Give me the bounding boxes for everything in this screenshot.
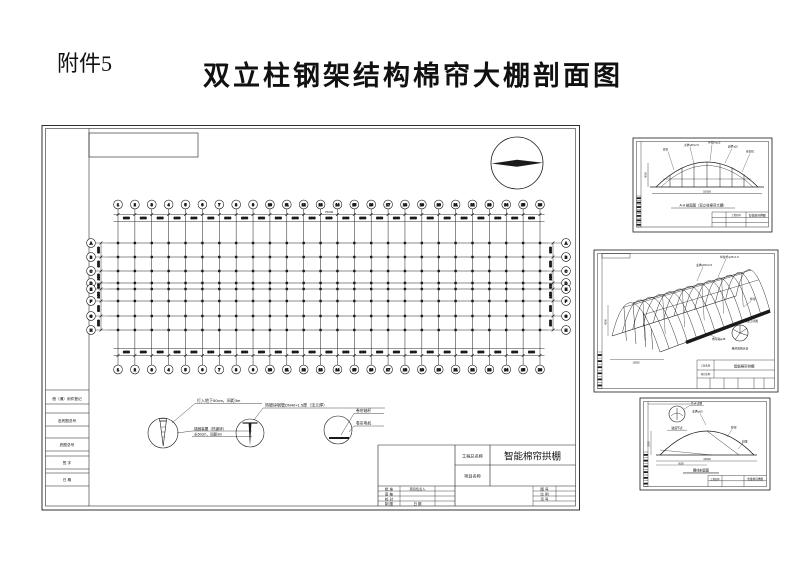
sec-note: 棉帘: [663, 148, 669, 152]
grid-bubble-number: 18: [403, 368, 407, 372]
wheel-caption: 卷帘机构示意: [732, 347, 749, 351]
strip-label: 底图总号: [60, 442, 75, 447]
bay-dim: 3000: [461, 216, 468, 220]
panel2-titleblock: 工程名称 智能棉帘拱棚 项目名称: [697, 360, 775, 389]
grid-bubble-number: 20: [437, 368, 441, 372]
row-dim: 3000: [548, 260, 552, 267]
grid-bubble-number: 19: [420, 368, 424, 372]
anchor-note: 打入地下50cm，间距3m: [197, 397, 241, 403]
bay-dim: 3000: [174, 216, 181, 220]
sheet-no-label: 图 号: [540, 486, 549, 491]
king-post: [682, 289, 685, 327]
bay-dim: 3000: [191, 216, 198, 220]
micro-text-bar: [644, 454, 647, 455]
row-dim: 3000: [548, 319, 552, 326]
king-post: [643, 300, 646, 340]
grid-bubble-number: 16: [369, 368, 373, 372]
panel2-strip: [598, 352, 603, 389]
height-dim: 4500: [644, 172, 648, 178]
grid-bubble-number: 12: [302, 368, 306, 372]
grid-bubble-number: 21: [454, 368, 458, 372]
micro-text-bar: [644, 483, 647, 484]
grid-bubble-number: 11: [285, 368, 289, 372]
grid-bubble-number: 23: [487, 203, 491, 207]
bay-dim: 3000: [225, 350, 232, 354]
grid-bubble-number: 1: [117, 203, 119, 207]
grid-bubble-number: 4: [168, 368, 170, 372]
sign-row-label: 审 核: [385, 491, 394, 496]
span-dim: 10000: [632, 361, 640, 365]
block-value: 智能棉帘拱棚: [749, 213, 766, 217]
tunnel-arc: [633, 297, 679, 345]
block-label: 项目名称: [701, 372, 711, 376]
page-title: 双立柱钢架结构棉帘大棚剖面图: [203, 60, 623, 91]
bay-dim: 3000: [140, 216, 147, 220]
micro-text-bar: [637, 207, 640, 208]
grid-bubble-number: 24: [504, 368, 508, 372]
panel1-titleblock: 工程名称 智能棉帘拱棚: [712, 212, 769, 227]
roller-note: 卷帘电机: [356, 421, 371, 426]
grid-bubble-number: 6: [201, 368, 203, 372]
grid-bubble-number: 10: [268, 368, 272, 372]
revision-box: [89, 133, 198, 157]
strip-label: 借（通）用件登记: [52, 396, 82, 401]
tunnel-arc: [695, 281, 734, 325]
block-label: 工程名称: [731, 213, 741, 217]
span-dim: 10000: [703, 190, 711, 194]
grid-bubble-letter: F: [90, 299, 92, 303]
bay-dim: 3000: [528, 350, 535, 354]
bay-dim: 3000: [123, 350, 130, 354]
grid-bubble-number: 9: [252, 368, 254, 372]
bay-dim: 3000: [528, 216, 535, 220]
node-caption: 锚固节点: [671, 426, 682, 430]
bay-dim: 3000: [444, 216, 451, 220]
grid-bubble-number: 7: [218, 368, 220, 372]
grid-bubble-number: 7: [218, 203, 220, 207]
grid-bubble-number: 14: [335, 203, 339, 207]
grid-bubble-number: 19: [420, 203, 424, 207]
pipe-note: 热镀锌钢管DN40×1.5厚（法兰焊）: [265, 402, 327, 408]
bay-dim: 3000: [495, 350, 502, 354]
grid-bubble-number: 26: [538, 368, 542, 372]
total-dim-label: 75000: [325, 210, 334, 214]
bay-dim: 3000: [376, 216, 383, 220]
bay-dim: 3000: [258, 216, 265, 220]
bay-dim: 3000: [309, 216, 316, 220]
grid-bubble-number: 8: [235, 368, 237, 372]
block-value: 智能棉帘拱棚: [747, 477, 763, 481]
arch-note: 斜撑: [742, 440, 748, 444]
drawing-page: 附件5 双立柱钢架结构棉帘大棚剖面图 75000 112233445566778…: [0, 0, 800, 565]
north-arrow: [491, 137, 543, 189]
cad-scene: 附件5 双立柱钢架结构棉帘大棚剖面图 75000 112233445566778…: [0, 0, 800, 565]
anchor-note: 锚固装置（热镀锌）: [194, 426, 226, 431]
end-post: [624, 306, 627, 340]
micro-text-bar: [644, 466, 647, 467]
bay-dim: 3000: [376, 350, 383, 354]
micro-text-bar: [637, 216, 640, 217]
grid-bubble-number: 17: [386, 368, 390, 372]
project-label: 工程总名称: [462, 453, 483, 460]
micro-text-bar: [637, 220, 640, 221]
grid-bubble-number: 3: [151, 368, 153, 372]
micro-text-bar: [637, 211, 640, 212]
height-dim: 3200: [648, 441, 651, 447]
block-label: 工程名称: [701, 363, 711, 367]
date-label: 日 期: [414, 501, 422, 506]
span-dim: 10000: [703, 457, 711, 461]
node-label: 节点详图: [691, 402, 702, 406]
row-dim: 2400: [548, 273, 552, 280]
bay-dim: 3000: [410, 216, 417, 220]
micro-text-bar: [598, 367, 601, 368]
row-dim: 3000: [548, 305, 552, 312]
side-strip: 借（通）用件登记 旧底图总号 底图总号 签 字 日 期: [46, 390, 90, 486]
half-dim: 5000: [678, 462, 684, 465]
attachment-label: 附件5: [57, 51, 112, 76]
item-label: 项目名称: [464, 473, 481, 480]
grid-bubble-number: 22: [471, 203, 475, 207]
panel3-title: 棚体剖面图: [693, 468, 709, 473]
bay-dim: 3000: [191, 350, 198, 354]
grid-bubble-number: 13: [319, 203, 323, 207]
anchor-note: 长50cm，间距3m: [194, 431, 222, 436]
micro-text-bar: [644, 460, 647, 461]
bay-dim: 3000: [326, 216, 333, 220]
grid-bubble-letter: F: [565, 299, 567, 303]
micro-text-bar: [598, 355, 601, 356]
tunnel-arc: [664, 289, 706, 335]
grid-bubble-number: 2: [134, 203, 136, 207]
roller-wheel: [732, 325, 748, 341]
grid-bubble-number: 20: [437, 203, 441, 207]
bay-dim: 3000: [174, 350, 181, 354]
micro-text-bar: [637, 202, 640, 203]
panel-section-sheet: 棉帘 主拱φ60×2.5 纵拉杆φ25 副拱φ25 卷帘机 10000 4500…: [633, 138, 772, 232]
bay-dim: 3000: [360, 216, 367, 220]
grid-bubble-number: 23: [487, 368, 491, 372]
column-grid: 1122334455667788991010111112121313141415…: [87, 200, 571, 374]
bay-dim: 3000: [444, 350, 451, 354]
rolled-curtain-band: [686, 311, 770, 343]
bay-dim: 3000: [410, 350, 417, 354]
panel2-dims: [608, 305, 664, 360]
bay-dim: 3000: [241, 216, 248, 220]
bay-dim: 3000: [511, 216, 518, 220]
sheet-outer-border: [42, 126, 580, 511]
bay-dim: 3000: [326, 350, 333, 354]
sign-row-label: 制 图: [385, 501, 394, 506]
roller-note: 卷帘轴杆: [356, 408, 371, 413]
micro-text-bar: [598, 361, 601, 362]
sec-note: 纵拉杆φ25: [708, 141, 721, 145]
row-dim: 900: [548, 283, 552, 288]
micro-text-bar: [598, 379, 601, 380]
end-post: [633, 303, 636, 344]
grid-bubble-number: 17: [386, 203, 390, 207]
bay-dim: 3000: [241, 350, 248, 354]
height-dim: 4500: [603, 319, 607, 325]
grid-bubble-letter: G: [565, 314, 568, 318]
tunnel-arc: [674, 286, 715, 331]
grid-bubble-number: 25: [521, 203, 525, 207]
project-name: 智能棉帘拱棚: [504, 451, 561, 463]
title-block: 工程总名称 智能棉帘拱棚 项目名称 批 准 审 核 校 对 制 图 项目负责人 …: [378, 445, 576, 506]
axon-note: 主拱φ60×2.5: [696, 263, 712, 267]
grid-bubble-number: 25: [521, 368, 525, 372]
panel-axon-sheet: 主拱φ60×2.5 纵拉杆φ25×1.5 棉帘 卷帘轴φ48 固定点详图 100…: [594, 250, 778, 392]
row-dim: 2400: [548, 291, 552, 298]
grid-bubble-number: 15: [352, 368, 356, 372]
grid-bubble-number: 9: [252, 203, 254, 207]
grid-bubble-number: 4: [168, 203, 170, 207]
grid-bubble-number: 12: [302, 203, 306, 207]
grid-bubble-number: 15: [352, 203, 356, 207]
block-label: 工程名称: [710, 477, 720, 481]
bay-dim: 3000: [478, 350, 485, 354]
panel3-titleblock: 工程名称 智能棉帘拱棚: [708, 476, 767, 487]
sheet-inner-border: [46, 129, 576, 507]
row-dim: 3000: [96, 260, 100, 267]
bay-dim: 3000: [393, 216, 400, 220]
grid-bubble-number: 10: [268, 203, 272, 207]
grid-bubble-number: 5: [185, 368, 187, 372]
grid-bubble-number: 2: [134, 368, 136, 372]
block-value: 智能棉帘拱棚: [734, 364, 755, 369]
axon-note: 纵拉杆φ25×1.5: [720, 255, 739, 259]
sec-note: 副拱φ25: [728, 145, 738, 149]
panel1-leaders: [668, 145, 750, 173]
bay-dim: 3000: [427, 350, 434, 354]
bay-dim: 3000: [225, 216, 232, 220]
bay-dim: 3000: [343, 350, 350, 354]
king-post: [722, 278, 724, 313]
tunnel-arc: [643, 294, 688, 341]
page-header: 附件5 双立柱钢架结构棉帘大棚剖面图: [57, 51, 623, 91]
micro-text-bar: [598, 373, 601, 374]
grid-bubble-number: 21: [454, 203, 458, 207]
bay-dim: 3000: [258, 350, 265, 354]
bay-dim: 3000: [275, 350, 282, 354]
grid-bubble-number: 26: [538, 203, 542, 207]
arch-note: 棉帘: [731, 426, 737, 430]
bay-dim: 3000: [275, 216, 282, 220]
grid-bubble-number: 16: [369, 203, 373, 207]
strip-label: 日 期: [63, 477, 72, 482]
panel1-columns: [670, 162, 744, 187]
bay-dim: 3000: [478, 216, 485, 220]
grid-bubble-number: 8: [235, 203, 237, 207]
grid-bubble-number: 6: [201, 203, 203, 207]
grid-bubble-number: 22: [471, 368, 475, 372]
king-post: [741, 273, 743, 307]
tunnel-arc: [705, 278, 743, 321]
bay-dim: 3000: [208, 350, 215, 354]
scale-label: 比 例: [540, 491, 549, 496]
bay-dim: 3000: [140, 350, 147, 354]
bay-dim: 3000: [292, 350, 299, 354]
grid-bubble-number: 3: [151, 203, 153, 207]
sec-note: 主拱φ60×2.5: [684, 143, 699, 147]
grid-bubble-number: 24: [504, 203, 508, 207]
grid-bubble-number: 14: [335, 368, 339, 372]
axon-tunnel: [612, 270, 770, 352]
bay-dim: 3000: [123, 216, 130, 220]
leader-label: 项目负责人: [410, 486, 427, 491]
micro-text-bar: [637, 224, 640, 225]
sec-note: 卷帘机: [746, 150, 754, 154]
panel1-strip: [637, 196, 642, 227]
panel1-title: A-A 剖面图（双立柱棉帘大棚）: [679, 203, 726, 208]
bay-dim: 3000: [292, 216, 299, 220]
row-dim: 2400: [96, 291, 100, 298]
bay-dim: 3000: [208, 216, 215, 220]
tunnel-edge: [633, 270, 751, 303]
main-drawing-sheet: 75000 1122334455667788991010111112121313…: [42, 126, 580, 511]
grid-bubble-number: 5: [185, 203, 187, 207]
row-dim: 3000: [548, 246, 552, 253]
axon-note: 棉帘: [750, 297, 756, 301]
tunnel-arc: [684, 283, 724, 328]
axon-note: 固定点详图: [745, 319, 758, 323]
bay-dim: 3000: [393, 350, 400, 354]
bay-dim: 3000: [360, 350, 367, 354]
bay-dim: 3000: [343, 216, 350, 220]
micro-text-bar: [644, 472, 647, 473]
micro-text-bar: [637, 198, 640, 199]
panel3-strip: [644, 452, 649, 487]
tunnel-arc: [653, 292, 696, 339]
bay-dim: 3000: [157, 216, 164, 220]
grid-bubble-number: 18: [403, 203, 407, 207]
strip-label: 签 字: [63, 460, 72, 465]
micro-text-bar: [644, 477, 647, 478]
grid-bubble-number: 1: [117, 368, 119, 372]
panel-arch-sheet: 节点详图 锚固节点 主拱φ60 棉帘 斜撑 10000 5000 3200 棚体…: [640, 398, 770, 490]
axon-note: 卷帘轴φ48: [712, 337, 726, 341]
tunnel-arc: [715, 275, 751, 318]
grid-bubble-number: 13: [319, 368, 323, 372]
row-dim: 900: [96, 283, 100, 288]
row-dim: 3000: [96, 246, 100, 253]
bay-dim: 3000: [157, 350, 164, 354]
bay-dim: 3000: [427, 216, 434, 220]
sign-row-label: 批 准: [385, 486, 394, 491]
grid-bubble-number: 11: [285, 203, 289, 207]
bay-dim: 3000: [511, 350, 518, 354]
arch-note: 主拱φ60: [692, 410, 703, 414]
page-no-label: 页 号: [540, 496, 549, 501]
row-dim: 3000: [96, 319, 100, 326]
sign-row-label: 校 对: [385, 496, 394, 501]
grid-bubble-letter: G: [90, 314, 93, 318]
detail-roller: 卷帘轴杆 卷帘电机: [324, 408, 384, 444]
row-dim: 2400: [96, 273, 100, 280]
strip-label: 旧底图总号: [58, 418, 77, 423]
bay-dim: 3000: [461, 350, 468, 354]
bay-dim: 3000: [495, 216, 502, 220]
row-dim: 3000: [96, 305, 100, 312]
micro-text-bar: [598, 385, 601, 386]
bay-dim: 3000: [309, 350, 316, 354]
